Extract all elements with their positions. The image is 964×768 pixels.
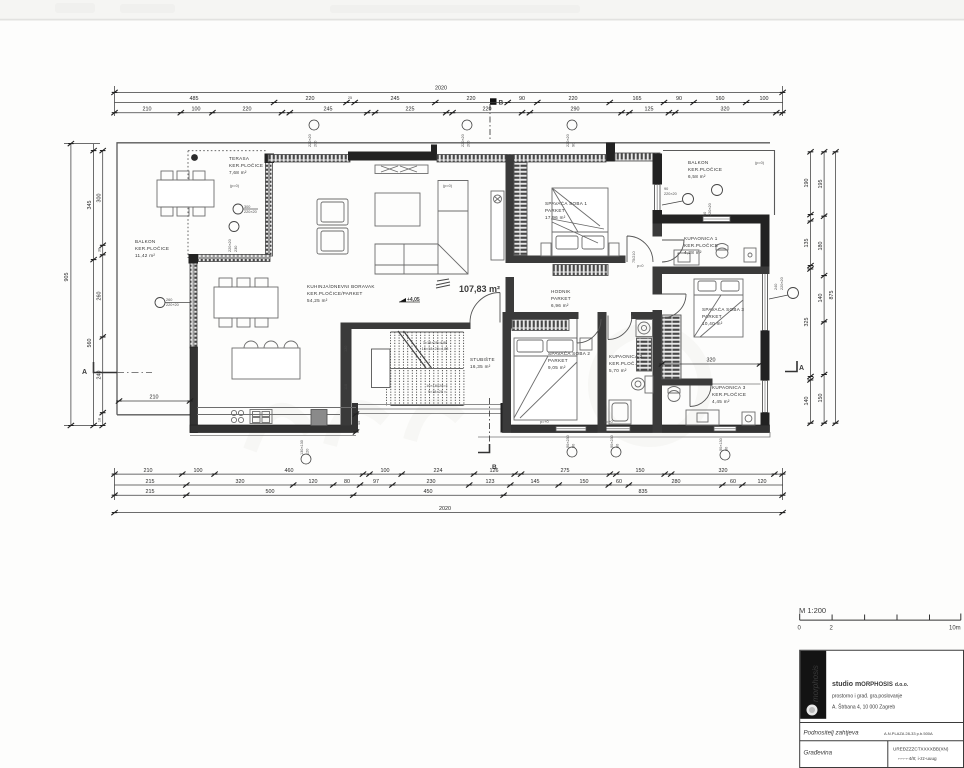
svg-text:60: 60 — [616, 479, 622, 485]
svg-text:500: 500 — [266, 489, 275, 495]
svg-text:2020: 2020 — [435, 86, 447, 92]
svg-text:120: 120 — [344, 346, 348, 352]
svg-text:220×20: 220×20 — [244, 210, 257, 214]
svg-text:240: 240 — [96, 371, 102, 380]
svg-text:325: 325 — [804, 318, 810, 327]
svg-text:230: 230 — [234, 246, 238, 252]
svg-text:220: 220 — [467, 96, 476, 102]
svg-text:145: 145 — [531, 479, 540, 485]
svg-text:100: 100 — [381, 468, 390, 474]
svg-text:A: A — [82, 369, 87, 376]
svg-text:135: 135 — [804, 239, 810, 248]
svg-text:275: 275 — [561, 468, 570, 474]
svg-text:4,45 m²: 4,45 m² — [712, 399, 730, 404]
svg-text:10,40 m²: 10,40 m² — [702, 321, 723, 326]
svg-text:60: 60 — [725, 447, 729, 451]
svg-text:SPAVAĆA SOBA 1: SPAVAĆA SOBA 1 — [545, 200, 587, 206]
svg-text:905: 905 — [64, 273, 70, 282]
svg-text:230: 230 — [427, 479, 436, 485]
svg-text:80: 80 — [344, 479, 350, 485]
svg-text:Podnositelj zahtjeva: Podnositelj zahtjeva — [804, 730, 860, 737]
svg-text:KER.PLOČICE: KER.PLOČICE — [229, 162, 263, 168]
svg-text:Građevina: Građevina — [804, 750, 833, 757]
svg-text:220: 220 — [243, 107, 252, 113]
svg-text:50: 50 — [703, 212, 707, 216]
svg-text:210: 210 — [144, 468, 153, 474]
svg-text:16×18×28=4,88: 16×18×28=4,88 — [422, 347, 449, 351]
svg-text:KER.PLOČICE: KER.PLOČICE — [684, 242, 718, 248]
svg-text:210: 210 — [143, 107, 152, 113]
svg-text:KUHINJA/DNEVNI BORAVAK: KUHINJA/DNEVNI BORAVAK — [307, 284, 375, 289]
svg-text:100: 100 — [192, 107, 201, 113]
svg-text:245: 245 — [391, 96, 400, 102]
svg-text:A. Štrbana 4, 10 000 Zagreb: A. Štrbana 4, 10 000 Zagreb — [832, 704, 895, 711]
svg-text:180: 180 — [818, 242, 824, 251]
svg-text:2020: 2020 — [439, 506, 451, 512]
svg-text:220×20: 220×20 — [708, 203, 712, 216]
svg-text:120: 120 — [306, 449, 310, 455]
svg-text:190: 190 — [804, 179, 810, 188]
svg-text:(p=0): (p=0) — [443, 184, 453, 188]
svg-text:220×20: 220×20 — [228, 239, 232, 252]
svg-text:A: A — [799, 365, 804, 372]
svg-text:60: 60 — [730, 479, 736, 485]
svg-text:150: 150 — [818, 394, 824, 403]
svg-text:7×18×28=4,88: 7×18×28=4,88 — [423, 341, 448, 345]
svg-text:11,42 m²: 11,42 m² — [135, 253, 155, 258]
svg-text:126: 126 — [490, 468, 499, 474]
svg-text:485: 485 — [190, 96, 199, 102]
svg-text:320: 320 — [236, 479, 245, 485]
svg-text:SPAVAĆA SOBA 3: SPAVAĆA SOBA 3 — [702, 306, 744, 312]
svg-text:5,70 m²: 5,70 m² — [609, 368, 627, 373]
svg-text:260: 260 — [166, 298, 172, 302]
svg-text:UREĐZZZCTXXXXBB(XN): UREĐZZZCTXXXXBB(XN) — [893, 747, 949, 752]
svg-text:125: 125 — [645, 107, 654, 113]
svg-text:123: 123 — [486, 479, 495, 485]
svg-text:97: 97 — [373, 479, 379, 485]
svg-text:M 1:200: M 1:200 — [799, 606, 826, 615]
svg-text:(p=0): (p=0) — [230, 184, 240, 188]
svg-text:KUPAONICA 2: KUPAONICA 2 — [609, 354, 643, 359]
svg-text:215: 215 — [146, 489, 155, 495]
svg-text:160: 160 — [716, 96, 725, 102]
svg-text:KER.PLOČICE: KER.PLOČICE — [688, 166, 722, 172]
svg-text:p=0: p=0 — [637, 264, 643, 268]
svg-text:450: 450 — [424, 489, 433, 495]
svg-text:45: 45 — [357, 421, 361, 425]
svg-text:25: 25 — [348, 96, 352, 100]
svg-text:220×20: 220×20 — [664, 192, 677, 196]
svg-text:54,25 m²: 54,25 m² — [307, 298, 328, 303]
svg-text:75/210: 75/210 — [632, 251, 636, 263]
svg-text:290: 290 — [571, 107, 580, 113]
svg-text:220×20: 220×20 — [780, 277, 784, 290]
svg-text:BALKON: BALKON — [135, 239, 155, 244]
svg-text:460: 460 — [285, 468, 294, 474]
svg-text:240: 240 — [774, 284, 778, 290]
svg-text:KUPAONICA 1: KUPAONICA 1 — [684, 236, 718, 241]
svg-text:p=+0: p=+0 — [540, 420, 549, 424]
svg-text:9,05 m²: 9,05 m² — [548, 365, 566, 370]
svg-text:165: 165 — [633, 96, 642, 102]
svg-text:345: 345 — [87, 201, 93, 210]
svg-text:140: 140 — [818, 294, 824, 303]
svg-text:16,35 m²: 16,35 m² — [470, 364, 491, 369]
svg-text:835: 835 — [639, 489, 648, 495]
svg-text:200: 200 — [314, 141, 318, 147]
svg-text:PARKET: PARKET — [548, 358, 568, 363]
svg-text:120: 120 — [309, 479, 318, 485]
svg-text:220: 220 — [306, 96, 315, 102]
svg-text:220+20: 220+20 — [166, 303, 179, 307]
svg-text:6,96 m²: 6,96 m² — [551, 303, 569, 308]
svg-text:10m: 10m — [949, 626, 961, 632]
svg-text:200: 200 — [467, 141, 471, 147]
svg-text:320: 320 — [719, 468, 728, 474]
svg-text:4,28 m²: 4,28 m² — [684, 250, 702, 255]
svg-text:210: 210 — [150, 395, 159, 401]
svg-text:215: 215 — [146, 479, 155, 485]
svg-text:STUBIŠTE: STUBIŠTE — [470, 356, 495, 362]
svg-text:875: 875 — [829, 291, 835, 300]
svg-text:220: 220 — [569, 96, 578, 102]
svg-text:300: 300 — [244, 205, 250, 209]
svg-text:⌐⌐⌐⌐4/8; i-zz-uuug: ⌐⌐⌐⌐4/8; i-zz-uuug — [898, 756, 937, 761]
svg-text:60: 60 — [616, 444, 620, 448]
svg-text:studio mORPHOSIS d.o.o.: studio mORPHOSIS d.o.o. — [832, 681, 909, 688]
svg-text:90: 90 — [664, 187, 668, 191]
svg-text:9×18×28 ×: 9×18×28 × — [428, 390, 446, 394]
svg-text:220×20: 220×20 — [308, 134, 312, 147]
svg-text:morphosis: morphosis — [811, 665, 820, 702]
svg-text:260: 260 — [96, 292, 102, 301]
svg-text:120: 120 — [758, 479, 767, 485]
svg-text:220×20: 220×20 — [566, 134, 570, 147]
svg-text:280: 280 — [672, 479, 681, 485]
svg-text:16×18×28=×: 16×18×28=× — [426, 384, 448, 388]
svg-text:90: 90 — [519, 96, 525, 102]
svg-text:100: 100 — [194, 468, 203, 474]
svg-text:PARKET: PARKET — [545, 208, 565, 213]
svg-text:prostorno i građ. gra.poslovan: prostorno i građ. gra.poslovanje — [832, 694, 903, 700]
svg-text:B: B — [499, 100, 504, 107]
svg-text:30: 30 — [97, 248, 101, 252]
svg-text:560: 560 — [87, 339, 93, 348]
svg-text:KER.PLOČ.: KER.PLOČ. — [609, 360, 636, 366]
svg-text:KER.PLOČICE: KER.PLOČICE — [135, 245, 169, 251]
svg-text:p=+0: p=+0 — [604, 420, 613, 424]
svg-text:320: 320 — [707, 358, 716, 364]
svg-text:90: 90 — [572, 444, 576, 448]
svg-text:PARKET: PARKET — [702, 314, 722, 319]
svg-text:195: 195 — [818, 180, 824, 189]
svg-text:225: 225 — [406, 107, 415, 113]
svg-text:90×230: 90×230 — [566, 435, 570, 448]
svg-text:KER.PLOČICE: KER.PLOČICE — [712, 391, 746, 397]
svg-text:HODNIK: HODNIK — [551, 289, 571, 294]
svg-text:90: 90 — [676, 96, 682, 102]
svg-text:100: 100 — [760, 96, 769, 102]
svg-text:PARKET: PARKET — [551, 296, 571, 301]
svg-text:140: 140 — [804, 397, 810, 406]
svg-text:150: 150 — [580, 479, 589, 485]
svg-text:7,68 m²: 7,68 m² — [229, 170, 247, 175]
svg-text:150: 150 — [636, 468, 645, 474]
svg-text:220×20: 220×20 — [461, 134, 465, 147]
svg-text:107,83 m²: 107,83 m² — [459, 284, 500, 294]
svg-text:90×130: 90×130 — [719, 438, 723, 451]
svg-text:130×130: 130×130 — [300, 440, 304, 455]
svg-text:6,58 m²: 6,58 m² — [688, 174, 706, 179]
svg-text:320: 320 — [721, 107, 730, 113]
svg-text:220: 220 — [483, 107, 492, 113]
svg-text:224: 224 — [434, 468, 443, 474]
svg-text:KER.PLOČICE/PARKET: KER.PLOČICE/PARKET — [307, 290, 363, 296]
svg-text:SPAVAĆA SOBA 2: SPAVAĆA SOBA 2 — [548, 350, 590, 356]
svg-text:BALKON: BALKON — [688, 160, 708, 165]
svg-text:90: 90 — [572, 143, 576, 147]
svg-text:(p=0): (p=0) — [755, 161, 765, 165]
svg-text:245: 245 — [324, 107, 333, 113]
svg-text:300: 300 — [96, 194, 102, 203]
svg-text:17,96 m²: 17,96 m² — [545, 215, 566, 220]
svg-text:A.N.PLAZA 28-33 p.b.500A: A.N.PLAZA 28-33 p.b.500A — [884, 731, 933, 736]
svg-text:TERASA: TERASA — [229, 156, 250, 161]
svg-text:18: 18 — [97, 418, 101, 422]
svg-text:KUPAONICA 3: KUPAONICA 3 — [712, 385, 746, 390]
svg-text:110: 110 — [344, 384, 348, 390]
svg-text:90×230: 90×230 — [610, 435, 614, 448]
